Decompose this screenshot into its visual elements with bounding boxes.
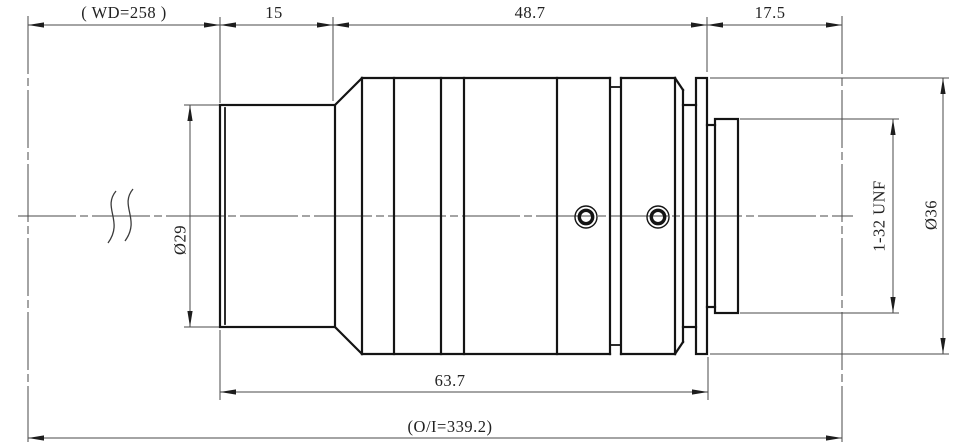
dim-top-chain: ( WD=258 ) 15 48.7 17.5	[28, 3, 842, 103]
drawing-svg: ( WD=258 ) 15 48.7 17.5 63.7 (O/I=339.2)…	[0, 0, 961, 447]
cone-bottom	[335, 327, 362, 354]
dim-body-diameter-label: Ø36	[922, 200, 941, 230]
dim-object-image-label: (O/I=339.2)	[408, 417, 493, 436]
dim-body-length-label: 63.7	[435, 371, 466, 390]
set-screw-1	[575, 206, 597, 228]
dim-front-diameter-label: Ø29	[171, 225, 190, 255]
dim-mid-length-label: 48.7	[515, 3, 546, 22]
cone-top	[335, 78, 362, 105]
set-screw-2	[647, 206, 669, 228]
dim-thread-label: 1-32 UNF	[870, 180, 889, 251]
technical-drawing: ( WD=258 ) 15 48.7 17.5 63.7 (O/I=339.2)…	[0, 0, 961, 447]
dim-front-length-label: 15	[265, 3, 283, 22]
dim-object-image: (O/I=339.2)	[28, 417, 842, 441]
rear-chamfer-top	[675, 78, 683, 90]
dim-flange-focal-label: 17.5	[755, 3, 786, 22]
dim-working-distance-label: ( WD=258 )	[81, 3, 167, 22]
rear-chamfer-bottom	[675, 342, 683, 354]
